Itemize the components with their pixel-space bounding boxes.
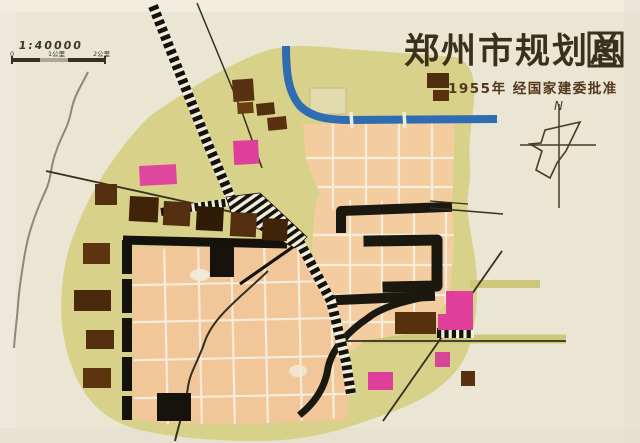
industrial-block-brown bbox=[232, 79, 254, 102]
special-zone-magenta bbox=[435, 352, 450, 367]
industrial-block-brown bbox=[83, 368, 111, 388]
special-zone-magenta bbox=[368, 372, 393, 390]
industrial-block-brown bbox=[395, 312, 436, 334]
map-photo: 1:40000 0 1公里 2公里 郑州市规划总 图 1955年 经国家建委批准… bbox=[0, 0, 640, 443]
public-block-black bbox=[157, 393, 191, 421]
industrial-block-brown bbox=[86, 330, 114, 349]
scale-tick-1km: 1公里 bbox=[48, 50, 66, 58]
industrial-block-brown bbox=[262, 218, 288, 241]
special-zone-magenta bbox=[233, 140, 259, 165]
industrial-block-brown bbox=[267, 116, 287, 131]
industrial-block-brown bbox=[95, 184, 117, 205]
industrial-block-brown bbox=[196, 206, 224, 231]
scale-tick-2km: 2公里 bbox=[93, 50, 111, 58]
map-canvas: 1:40000 0 1公里 2公里 郑州市规划总 图 1955年 经国家建委批准… bbox=[0, 0, 640, 443]
industrial-block-brown bbox=[163, 201, 191, 226]
industrial-block-brown bbox=[427, 73, 449, 88]
planned-square-outline bbox=[310, 88, 346, 114]
industrial-block-brown bbox=[83, 243, 110, 264]
map-title-boxed-char: 图 bbox=[593, 37, 617, 65]
industrial-block-brown bbox=[230, 212, 257, 237]
industrial-block-brown bbox=[433, 90, 449, 101]
industrial-block-brown bbox=[461, 371, 475, 386]
industrial-block-brown bbox=[237, 102, 254, 114]
map-subtitle: 1955年 经国家建委批准 bbox=[448, 80, 618, 97]
special-zone-magenta bbox=[438, 314, 448, 330]
industrial-block-brown bbox=[256, 102, 275, 116]
industrial-block-brown bbox=[129, 196, 159, 222]
public-block-black bbox=[210, 243, 234, 277]
industrial-block-brown bbox=[74, 290, 111, 311]
special-zone-magenta bbox=[139, 164, 177, 186]
station-platform-bar bbox=[123, 240, 287, 244]
special-zone-magenta bbox=[446, 291, 473, 330]
